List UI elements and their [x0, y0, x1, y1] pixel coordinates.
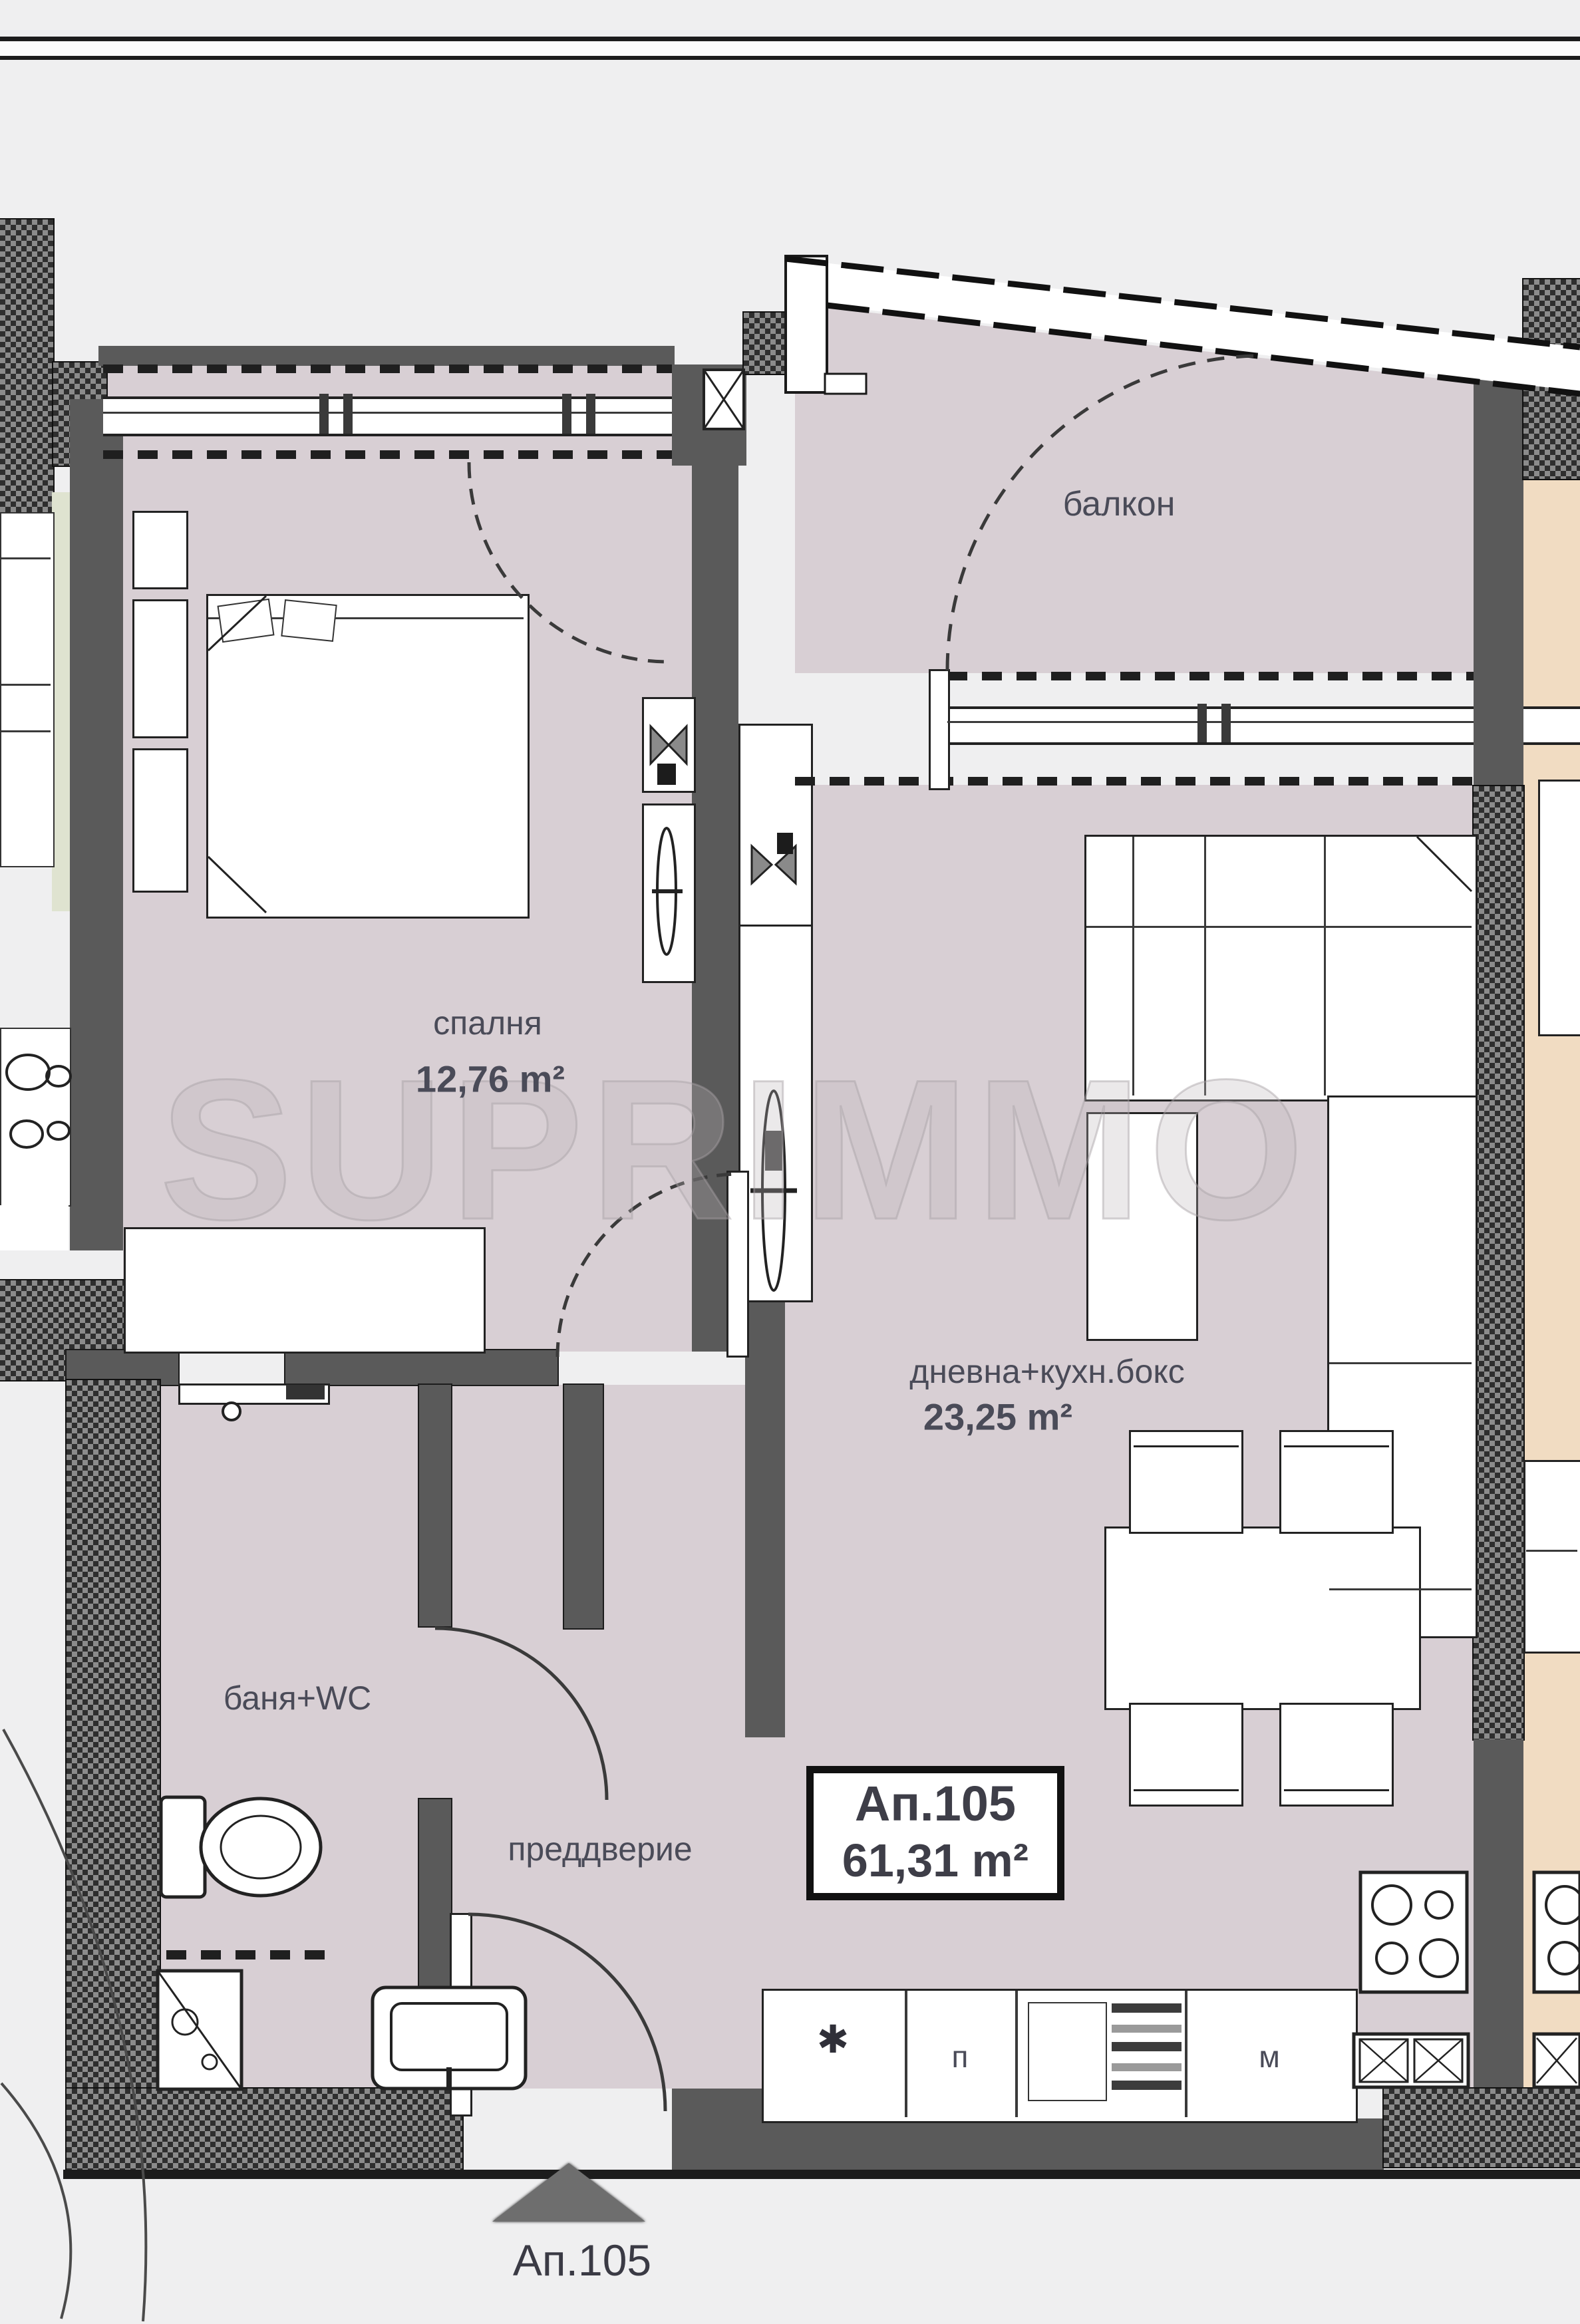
bath-door-arc [435, 1628, 607, 1800]
neighbor-left-door-arcs [1, 1729, 146, 2321]
corner-sink-icon [1354, 2034, 1468, 2087]
living-label: дневна+кухн.бокс [909, 1352, 1185, 1391]
neighbor-stove-icon [1534, 1872, 1580, 1992]
kitchen-sink-symbol: ✱ [817, 2017, 850, 2062]
radiator-icon-bedroom [652, 828, 683, 954]
shower-icon [158, 1971, 241, 2089]
bedroom-label: спалня [433, 1004, 542, 1042]
washbasin-icon [373, 1987, 526, 2089]
stove-icon [1360, 1872, 1467, 1992]
kitchen-cabinet-left: п [952, 2039, 969, 2075]
toilet-icon [161, 1797, 321, 1897]
bath-label: баня+WC [224, 1679, 372, 1717]
bedroom-area: 12,76 m² [416, 1058, 565, 1101]
neighbor-hob-burners [7, 1055, 71, 1147]
neighbor-sink-icon [1534, 2034, 1580, 2087]
hall-label: преддверие [508, 1830, 692, 1868]
sofa-corner-line [1417, 837, 1472, 891]
entrance-arrow-icon [492, 2163, 645, 2222]
apartment-info-box: Ап.105 61,31 m² [806, 1766, 1064, 1900]
balcony-parapet [786, 256, 1580, 394]
duct-fan-icon-bedroom [651, 726, 687, 785]
bed-fold-line [208, 596, 266, 913]
kitchen-cabinet-right: м [1259, 2039, 1280, 2075]
watermark-text: SUPRIMMO [160, 1034, 1311, 1264]
bath-door-knob [223, 1403, 240, 1420]
living-area: 23,25 m² [923, 1395, 1072, 1439]
entrance-label: Ап.105 [513, 2235, 651, 2285]
bedroom-balcony-dashed-arc [469, 462, 669, 662]
duct-fan-icon-living [752, 833, 796, 883]
balcony-label: балкон [1063, 484, 1176, 524]
floor-plan-page: { "plan": { "type": "apartment-floor-pla… [0, 0, 1580, 2324]
apartment-id: Ап.105 [814, 1773, 1057, 1834]
pier-duct-box [704, 370, 744, 429]
apartment-total-area: 61,31 m² [814, 1834, 1057, 1886]
